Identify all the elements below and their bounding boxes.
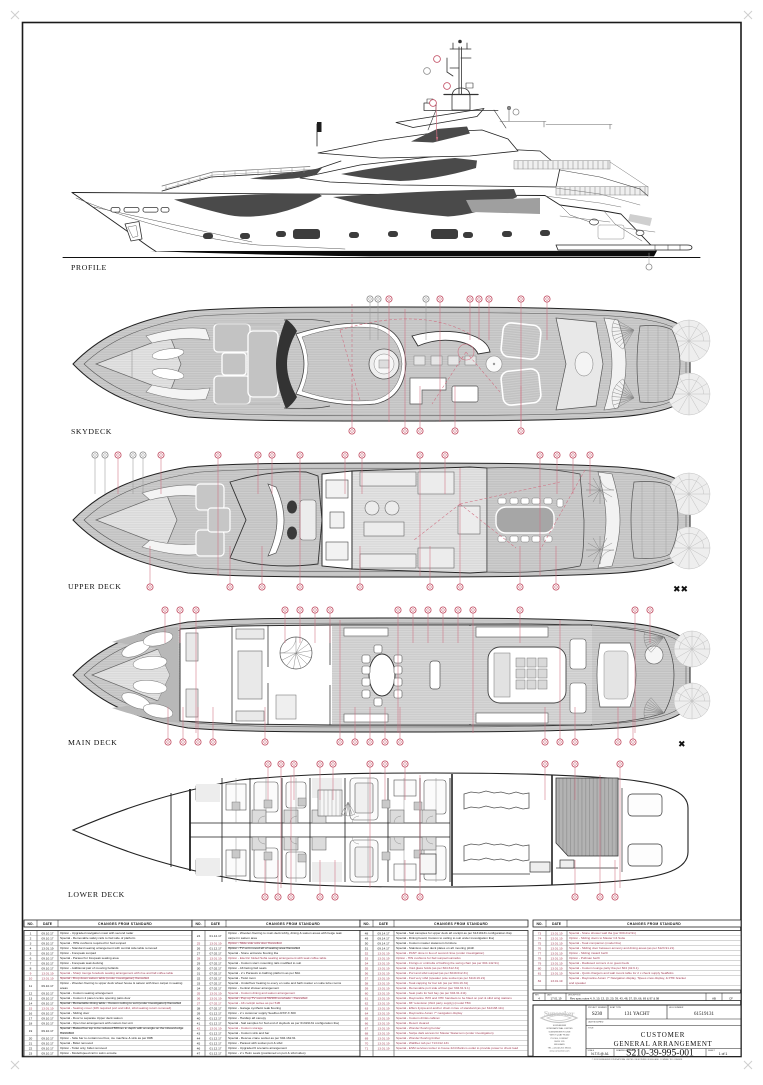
svg-text:07.02.17: 07.02.17 [209, 1006, 221, 1010]
svg-text:Cancelled: Cancelled [60, 1031, 74, 1035]
svg-text:53: 53 [365, 956, 369, 960]
svg-text:09.10.17: 09.10.17 [41, 931, 53, 935]
svg-text:10: 10 [29, 976, 33, 980]
svg-text:Special - Teak capping for bar: Special - Teak capping for bar tub (as p… [396, 981, 468, 985]
svg-text:Option - Wooden flooring to m: Option - Wooden flooring to main deck lo… [228, 931, 342, 935]
svg-text:17.01.19: 17.01.19 [551, 996, 562, 1000]
svg-text:areas: areas [60, 986, 68, 990]
svg-text:Special - Stone shower wall tb: Special - Stone shower wall tba (per 600… [569, 931, 636, 935]
svg-text:63: 63 [365, 1006, 369, 1010]
svg-text:Special - Sliding door between: Special - Sliding door between annexry a… [569, 946, 674, 950]
svg-text:31: 31 [197, 971, 201, 975]
svg-text:Option - Central shower arran: Option - Central shower arrangement [228, 986, 279, 990]
svg-text:13.01.19: 13.01.19 [377, 1011, 389, 1015]
svg-text:7: 7 [30, 961, 32, 965]
svg-text:Option - Model/speed rail in: Option - Model/speed rail in swim ensuit… [60, 1051, 117, 1055]
svg-text:18: 18 [29, 1021, 33, 1025]
svg-text:13.01.19: 13.01.19 [377, 956, 389, 960]
svg-text:Option - Garage synthetic tea: Option - Garage synthetic teak flooring [228, 1006, 281, 1010]
svg-text:NO.: NO. [363, 922, 369, 926]
svg-text:09.10.17: 09.10.17 [41, 941, 53, 945]
svg-text:BOAT TYPE: BOAT TYPE [610, 1006, 622, 1009]
svg-text:09.10.17: 09.10.17 [41, 961, 53, 965]
svg-text:WEST QUAY ROAD: WEST QUAY ROAD [550, 1034, 570, 1037]
svg-text:13.01.19: 13.01.19 [377, 981, 389, 985]
svg-text:Special - Drop down saloon tab: Special - Drop down saloon table (under … [60, 976, 149, 980]
svg-text:11: 11 [29, 984, 32, 988]
svg-text:61519131: 61519131 [694, 1012, 715, 1017]
svg-text:Special - 86" television (thir: Special - 86" television (third party su… [396, 1001, 472, 1005]
svg-text:Special - Seat pods for fwd ba: Special - Seat pods for fwd bay (as per … [396, 991, 466, 995]
svg-text:SUNSEEKER HOUSE: SUNSEEKER HOUSE [549, 1031, 571, 1033]
svg-text:CUSTOMER: CUSTOMER [641, 1031, 685, 1039]
svg-text:77: 77 [538, 951, 542, 955]
svg-text:13.01.19: 13.01.19 [377, 971, 389, 975]
svg-text:15: 15 [29, 1006, 33, 1010]
svg-text:S230: S230 [592, 1012, 603, 1017]
svg-text:01.12.17: 01.12.17 [209, 1031, 221, 1035]
svg-text:DATE: DATE [43, 922, 53, 926]
svg-text:Special - Teak companion (mode: Special - Teak companion (model tba) [569, 941, 621, 945]
svg-text:44: 44 [197, 1036, 201, 1040]
svg-text:13.01.19: 13.01.19 [377, 966, 389, 970]
svg-text:8: 8 [30, 966, 32, 970]
svg-text:Option - Aft facing fwd seats: Option - Aft facing fwd seats [228, 966, 267, 970]
svg-text:CHANGES FROM STANDARD: CHANGES FROM STANDARD [627, 922, 681, 926]
svg-text:09.10.17: 09.10.17 [41, 956, 53, 960]
svg-text:09.10.17: 09.10.17 [41, 1001, 53, 1005]
svg-text:14: 14 [29, 1001, 33, 1005]
svg-text:13.01.19: 13.01.19 [550, 966, 562, 970]
svg-text:LAST MODIFIED: LAST MODIFIED [588, 1021, 604, 1024]
svg-text:SUNSEEKER: SUNSEEKER [553, 1025, 567, 1027]
svg-text:67: 67 [365, 1026, 369, 1030]
svg-text:01.12.17: 01.12.17 [209, 934, 221, 938]
svg-text:79: 79 [538, 961, 542, 965]
svg-text:13.01.19: 13.01.19 [550, 946, 562, 950]
svg-text:01.12.17: 01.12.17 [209, 1011, 221, 1015]
svg-text:CHANGES FROM STANDARD: CHANGES FROM STANDARD [266, 922, 320, 926]
svg-text:19: 19 [29, 1029, 33, 1033]
svg-text:and speaker: and speaker [569, 981, 586, 985]
svg-text:57: 57 [365, 976, 369, 980]
svg-text:13.01.19: 13.01.19 [377, 1041, 389, 1045]
svg-text:1 of 1: 1 of 1 [719, 1052, 728, 1056]
svg-text:LOWER DECK: LOWER DECK [68, 890, 125, 899]
svg-text:07.02.17: 07.02.17 [209, 981, 221, 985]
svg-text:27: 27 [197, 951, 201, 955]
svg-text:76: 76 [538, 946, 542, 950]
svg-text:29: 29 [197, 961, 201, 965]
svg-text:42: 42 [197, 1026, 201, 1030]
svg-text:09.10.17: 09.10.17 [41, 1036, 53, 1040]
svg-text:Option - Sliding inward berth: Option - Sliding inward berth [569, 951, 608, 955]
svg-text:09.10.17: 09.10.17 [41, 991, 53, 995]
svg-text:Special - Void glass holds (as: Special - Void glass holds (as per 604.6… [396, 966, 459, 970]
svg-text:CF: CF [729, 996, 733, 1000]
svg-text:34: 34 [197, 986, 201, 990]
svg-text:POOLE, DORSET: POOLE, DORSET [551, 1038, 570, 1040]
svg-text:Option - Electric folded Sofi: Option - Electric folded Sofia seating a… [228, 956, 327, 960]
svg-text:17: 17 [29, 1016, 33, 1020]
svg-text:13.01.19: 13.01.19 [550, 936, 562, 940]
svg-text:Special - Custom dining and sa: Special - Custom dining and saloon arran… [228, 991, 295, 995]
svg-text:25: 25 [197, 941, 201, 945]
svg-text:13.01.19: 13.01.19 [209, 996, 221, 1000]
svg-text:32: 32 [197, 976, 201, 980]
svg-text:Special - Quick chargers and w: Special - Quick chargers and wall mount … [569, 971, 674, 975]
svg-text:13.01.19: 13.01.19 [377, 1016, 389, 1020]
svg-text:07.02.17: 07.02.17 [209, 971, 221, 975]
svg-text:38: 38 [197, 1006, 201, 1010]
svg-text:13.01.19: 13.01.19 [209, 1026, 221, 1030]
svg-text:23: 23 [29, 1051, 33, 1055]
svg-text:Option - Pullman berth: Option - Pullman berth [569, 956, 600, 960]
svg-text:Special - Sharp lounge foredec: Special - Sharp lounge foredeck seating … [60, 971, 173, 975]
svg-text:131 YACHT: 131 YACHT [624, 1012, 649, 1017]
svg-text:PROFILE: PROFILE [71, 263, 107, 272]
svg-text:NO.: NO. [536, 922, 542, 926]
svg-text:DATE: DATE [211, 922, 221, 926]
svg-text:01.12.17: 01.12.17 [209, 1041, 221, 1045]
svg-text:Special - Pop up TV summit 50/: Special - Pop up TV summit 50/100 sunsha… [228, 996, 308, 1000]
svg-text:Option - Slide side sofa door: Option - Slide side sofa door Cancelled [228, 941, 282, 945]
svg-text:Option - 2 x Helm seats (posi: Option - 2 x Helm seats (positioned on p… [228, 1051, 306, 1055]
svg-text:Special - Stone entrance floor: Special - Stone entrance flooring tba [228, 951, 278, 955]
svg-text:Special - PANT done in lieu of: Special - PANT done in lieu of second ri… [396, 951, 484, 955]
svg-text:13.01.19: 13.01.19 [550, 961, 562, 965]
svg-text:Special - Removable safety rai: Special - Removable safety rails to fwd … [60, 936, 136, 940]
svg-text:Special - HPE cushions require: Special - HPE cushions required for fwd … [60, 941, 126, 945]
svg-text:73: 73 [538, 931, 542, 935]
svg-text:Special - Seating cover (10ft: Special - Seating cover (10ft required p… [60, 1006, 171, 1010]
svg-text:DATE: DATE [379, 922, 389, 926]
svg-text:13.01.19: 13.01.19 [377, 976, 389, 980]
svg-text:SKYDECK: SKYDECK [71, 427, 112, 436]
svg-text:48: 48 [365, 931, 369, 935]
svg-text:59: 59 [365, 986, 369, 990]
svg-text:52: 52 [365, 951, 369, 955]
svg-text:BH15 1JD: BH15 1JD [555, 1041, 565, 1043]
svg-text:13.01.19: 13.01.19 [377, 951, 389, 955]
svg-text:Option - Toilet only, bidet r: Option - Toilet only, bidet removed [60, 1046, 107, 1050]
svg-text:51: 51 [365, 946, 369, 950]
svg-text:Special - Parasol for forepeak: Special - Parasol for forepeak seating a… [60, 956, 119, 960]
svg-text:37: 37 [197, 1001, 201, 1005]
svg-text:62: 62 [365, 1001, 369, 1005]
svg-text:ENGLAND: ENGLAND [554, 1043, 565, 1046]
svg-text:Option - Upgraded navigation: Option - Upgraded navigation mast with s… [60, 931, 133, 935]
svg-text:2: 2 [30, 936, 32, 940]
svg-text:13.01.19: 13.01.19 [41, 1006, 53, 1010]
svg-text:CHANGES FROM STANDARD: CHANGES FROM STANDARD [434, 922, 488, 926]
svg-text:13.01.19: 13.01.19 [377, 1001, 389, 1005]
svg-text:70: 70 [365, 1041, 369, 1045]
svg-text:Special - Sail samples for fwd: Special - Sail samples for fwd end of sk… [228, 1021, 339, 1025]
svg-text:43: 43 [197, 1031, 201, 1035]
svg-text:07.02.17: 07.02.17 [209, 976, 221, 980]
svg-text:Option - Forepeak sunpad: Option - Forepeak sunpad [60, 951, 96, 955]
svg-text:71: 71 [365, 1046, 369, 1050]
svg-text:13.01.19: 13.01.19 [550, 979, 562, 983]
svg-text:55: 55 [365, 966, 369, 970]
svg-text:Option - Side bar to contain: Option - Side bar to contain tool box, i… [60, 1036, 153, 1040]
svg-text:13.01.19: 13.01.19 [209, 991, 221, 995]
svg-text:09.14.17: 09.14.17 [377, 936, 389, 940]
svg-text:07.02.17: 07.02.17 [209, 986, 221, 990]
svg-text:13: 13 [29, 996, 33, 1000]
svg-text:Special - Underfloor heating t: Special - Underfloor heating to every en… [228, 981, 342, 985]
svg-text:13.01.19: 13.01.19 [550, 941, 562, 945]
svg-text:01.12.17: 01.12.17 [209, 1021, 221, 1025]
svg-text:13.01.19: 13.01.19 [41, 976, 53, 980]
svg-text:Special - 2 x Parasols to bath: Special - 2 x Parasols to bathing platfo… [228, 971, 301, 975]
svg-text:www.sunseeker.com: www.sunseeker.com [550, 1050, 570, 1053]
svg-text:INTERNATIONAL LIMITED: INTERNATIONAL LIMITED [546, 1027, 573, 1030]
svg-text:39: 39 [197, 1011, 201, 1015]
svg-text:Special - Bidet removed: Special - Bidet removed [60, 1041, 93, 1045]
svg-text:64: 64 [365, 1011, 369, 1015]
svg-text:13.01.19: 13.01.19 [550, 931, 562, 935]
svg-text:13.01.19: 13.01.19 [41, 971, 53, 975]
svg-text:21: 21 [29, 1041, 33, 1045]
svg-text:Option - Upgraded 6 scenario: Option - Upgraded 6 scenario arrangement [228, 1046, 287, 1050]
svg-text:40: 40 [197, 1016, 201, 1020]
svg-text:09.10.17: 09.10.17 [41, 1011, 53, 1015]
svg-text:9: 9 [30, 971, 32, 975]
svg-text:24: 24 [197, 934, 201, 938]
svg-text:13.01.19: 13.01.19 [550, 951, 562, 955]
svg-text:13.01.19: 13.01.19 [550, 971, 562, 975]
svg-text:01.12.17: 01.12.17 [209, 1046, 221, 1050]
svg-text:13.01.19: 13.01.19 [209, 941, 221, 945]
svg-text:13.01.19: 13.01.19 [377, 1021, 389, 1025]
svg-text:36: 36 [197, 996, 201, 1000]
svg-text:Option - 2 x customer supply: Option - 2 x customer supply SeaDoo RXP-… [228, 1011, 296, 1015]
svg-text:09.10.17: 09.10.17 [41, 951, 53, 955]
svg-text:13.01.19: 13.01.19 [377, 1026, 389, 1030]
svg-text:66: 66 [365, 1021, 369, 1025]
svg-text:33: 33 [197, 981, 201, 985]
svg-text:09.10.17: 09.10.17 [41, 1021, 53, 1025]
svg-text:61: 61 [365, 996, 369, 1000]
svg-text:Special - Fwd very stbd (speak: Special - Fwd very stbd (speaker pole so… [396, 976, 485, 980]
svg-text:Special - Custom drinks cabine: Special - Custom drinks cabinet [396, 1016, 440, 1020]
svg-text:MAIN DECK: MAIN DECK [68, 738, 117, 747]
svg-text:12: 12 [29, 991, 33, 995]
svg-text:13.01.19: 13.01.19 [377, 1046, 389, 1050]
svg-text:DATE: DATE [552, 922, 562, 926]
svg-text:Special - Rescue crane socket: Special - Rescue crane socket as per 604… [228, 1036, 296, 1040]
svg-text:Special - Raymarine Axiom 7" N: Special - Raymarine Axiom 7" Navigation … [569, 976, 686, 980]
svg-text:50: 50 [365, 941, 369, 945]
svg-text:13.01.19: 13.01.19 [377, 1031, 389, 1035]
svg-text:1: 1 [30, 931, 32, 935]
svg-text:PROJECT NUMBER: PROJECT NUMBER [588, 1007, 607, 1009]
svg-text:Special - Dining board, Custom: Special - Dining board, Custom to ceilin… [396, 936, 494, 940]
svg-text:Special - Custom sink and bar: Special - Custom sink and bar [228, 1031, 269, 1035]
svg-text:07.02.17: 07.02.17 [209, 951, 221, 955]
svg-text:45: 45 [197, 1041, 201, 1045]
svg-text:Special - Wonder flooring timb: Special - Wonder flooring timber [396, 1036, 440, 1040]
svg-text:Option - TV unit moved aft of: Option - TV unit moved aft of seating ar… [228, 946, 300, 950]
svg-text:Special - Custom storage: Special - Custom storage [228, 1026, 263, 1030]
svg-text:09.10.17: 09.10.17 [41, 1051, 53, 1055]
svg-text:Special - Door to separate Upp: Special - Door to separate Upper deck sa… [60, 1016, 123, 1020]
svg-text:01.12.17: 01.12.17 [209, 1016, 221, 1020]
svg-text:09.10.17: 09.10.17 [41, 1046, 53, 1050]
svg-text:Special - Raymarine IS70 and V: Special - Raymarine IS70 and VHF handset… [396, 996, 512, 1000]
svg-text:Special - WallDec tab per 713.: Special - WallDec tab per 713.012.131 [396, 1041, 449, 1045]
svg-text:Option - HIN cushions for fwd: Option - HIN cushions for fwd sunpad sun… [396, 956, 461, 960]
svg-text:81: 81 [538, 971, 542, 975]
svg-text:13.01.19: 13.01.19 [377, 986, 389, 990]
svg-text:Special - Custom master stater: Special - Custom master stateroom furnit… [396, 941, 457, 945]
svg-text:09.14.17: 09.14.17 [377, 931, 389, 935]
svg-text:54: 54 [365, 961, 369, 965]
svg-text:Special - Custom lounge party: Special - Custom lounge party tba per 60… [569, 966, 638, 970]
svg-text:80: 80 [538, 966, 542, 970]
svg-text:✖: ✖ [678, 739, 686, 749]
svg-text:Option - Standard seating arr: Option - Standard seating arrangement wi… [60, 946, 157, 950]
svg-text:4: 4 [30, 946, 32, 950]
svg-text:68: 68 [365, 1031, 369, 1035]
svg-text:47: 47 [197, 1051, 201, 1055]
svg-text:Special - Stainless steel deck: Special - Stainless steel deck plates on… [396, 946, 475, 950]
svg-text:35: 35 [197, 991, 201, 995]
svg-text:28: 28 [197, 956, 201, 960]
svg-text:22: 22 [29, 1046, 33, 1050]
svg-text:Special - ESM services locker: Special - ESM services locker to house 2… [396, 1046, 518, 1050]
svg-text:CHANGES FROM STANDARD: CHANGES FROM STANDARD [98, 922, 152, 926]
svg-text:13.01.19: 13.01.19 [377, 991, 389, 995]
svg-text:16: 16 [29, 1011, 33, 1015]
svg-text:Option - Hardtop aft canopy: Option - Hardtop aft canopy [228, 1016, 266, 1020]
svg-text:78: 78 [538, 956, 542, 960]
svg-text:07.02.17: 07.02.17 [209, 966, 221, 970]
svg-text:Special - Custom 4 panel centr: Special - Custom 4 panel centre opening … [60, 996, 131, 1000]
svg-text:01.12.17: 01.12.17 [209, 946, 221, 950]
svg-text:Special - Effers ilycpa and an: Special - Effers ilycpa and anchor chain… [396, 1006, 504, 1010]
svg-text:Special - Aft cockpit settee a: Special - Aft cockpit settee as per 51B [228, 1001, 280, 1005]
svg-text:Option - Sliding doors to Mas: Option - Sliding doors to Master C4 Suit… [569, 936, 626, 940]
svg-text:20: 20 [29, 1036, 33, 1040]
svg-text:26: 26 [197, 946, 201, 950]
svg-text:74: 74 [538, 936, 542, 940]
svg-text:01.12.17: 01.12.17 [209, 1051, 221, 1055]
svg-text:TEL +44 (0)1202 381111: TEL +44 (0)1202 381111 [548, 1047, 573, 1049]
svg-text:N.T.S @ A1: N.T.S @ A1 [591, 1052, 609, 1056]
svg-text:07.02.17: 07.02.17 [209, 1001, 221, 1005]
svg-text:Special - Retractable dining t: Special - Retractable dining table - Cus… [60, 1001, 181, 1005]
svg-text:Special - Fixings or umbrella: Special - Fixings or umbrella of bathing… [396, 961, 499, 965]
svg-text:09.10.17: 09.10.17 [41, 936, 53, 940]
svg-text:58: 58 [365, 981, 369, 985]
svg-text:✖✖: ✖✖ [673, 584, 688, 594]
svg-text:09.14.17: 09.14.17 [377, 946, 389, 950]
svg-text:Special - Custom stern mountin: Special - Custom stern mounting rails mo… [228, 961, 301, 965]
svg-text:01.12.17: 01.12.17 [209, 1036, 221, 1040]
svg-text:Special - Raymarine Axiom 7" n: Special - Raymarine Axiom 7" navigation … [396, 1011, 463, 1015]
svg-text:13.01.19: 13.01.19 [377, 961, 389, 965]
svg-text:Special - Sail canopies for up: Special - Sail canopies for upper deck a… [396, 931, 512, 935]
svg-text:TITLE: TITLE [588, 1028, 594, 1030]
svg-text:09.10.17: 09.10.17 [41, 966, 53, 970]
svg-text:41: 41 [197, 1021, 201, 1025]
svg-text:Option - Additional pair of m: Option - Additional pair of mooring boll… [60, 966, 119, 970]
svg-text:69: 69 [365, 1036, 369, 1040]
svg-text:09.10.17: 09.10.17 [41, 984, 53, 988]
svg-text:Special - Swipe dark access fo: Special - Swipe dark access for Master S… [396, 1031, 494, 1035]
svg-text:30: 30 [197, 966, 201, 970]
svg-text:Special - Radiused corners d o: Special - Radiused corners d on guest be… [569, 961, 629, 965]
svg-text:S210-39-995-001: S210-39-995-001 [626, 1047, 694, 1058]
svg-text:NO.: NO. [195, 922, 201, 926]
svg-text:Special - Raised bar top to be: Special - Raised bar top to be reduced 5… [60, 1026, 184, 1030]
svg-text:© 2019 SUNSEEKER INTERNATIONAL: © 2019 SUNSEEKER INTERNATIONAL LIMITED. … [592, 1058, 682, 1061]
svg-text:Rev spec notes 4, 9, 10, 13, 1: Rev spec notes 4, 9, 10, 13, 15, 20, 39,… [570, 996, 660, 1000]
svg-text:56: 56 [365, 971, 369, 975]
svg-text:09.10.17: 09.10.17 [41, 1016, 53, 1020]
svg-text:SHEET: SHEET [708, 1050, 715, 1052]
svg-text:13.01.19: 13.01.19 [377, 1036, 389, 1040]
svg-text:UPPER DECK: UPPER DECK [68, 582, 121, 591]
svg-text:13.01.19: 13.01.19 [377, 1006, 389, 1010]
svg-text:75: 75 [538, 941, 542, 945]
svg-text:carpet in saloon area: carpet in saloon area [228, 936, 257, 940]
svg-text:Special - Wonder flooring bord: Special - Wonder flooring border [396, 1026, 440, 1030]
svg-text:Special - Removable port side: Special - Removable port side aft bar (p… [396, 986, 470, 990]
svg-text:09.14.17: 09.14.17 [377, 941, 389, 945]
svg-text:13.01.19: 13.01.19 [550, 956, 562, 960]
svg-text:82: 82 [538, 979, 542, 983]
svg-text:13.01.19: 13.01.19 [41, 946, 53, 950]
svg-text:Special - Resort cleared: Special - Resort cleared [396, 1021, 429, 1025]
svg-text:09.10.17: 09.10.17 [41, 996, 53, 1000]
svg-text:Option - Forepeak teak deckin: Option - Forepeak teak decking [60, 961, 103, 965]
svg-text:Special - Custom seating arran: Special - Custom seating arrangement [60, 991, 113, 995]
svg-text:Special - Sliding door: Special - Sliding door [60, 1011, 89, 1015]
svg-text:65: 65 [365, 1016, 369, 1020]
svg-text:6: 6 [30, 956, 32, 960]
svg-text:Special - Open bar arrangement: Special - Open bar arrangement with cust… [60, 1021, 133, 1025]
svg-text:Special - Twist room: Special - Twist room [228, 976, 256, 980]
svg-text:46: 46 [197, 1046, 201, 1050]
svg-text:HULL NUMBER: HULL NUMBER [669, 1007, 684, 1009]
svg-text:07.02.17: 07.02.17 [209, 961, 221, 965]
svg-text:5: 5 [30, 951, 32, 955]
svg-text:13.01.19: 13.01.19 [209, 956, 221, 960]
svg-text:49: 49 [365, 936, 369, 940]
svg-text:AB: AB [712, 996, 716, 1000]
svg-text:Option - Parasol with socket: Option - Parasol with socket port & stbd [228, 1041, 283, 1045]
svg-text:NO.: NO. [27, 922, 33, 926]
svg-text:3: 3 [30, 941, 32, 945]
svg-text:Option - Wooden flooring to u: Option - Wooden flooring to upper deck w… [60, 981, 183, 985]
svg-text:09.10.17: 09.10.17 [41, 1041, 53, 1045]
svg-text:60: 60 [365, 991, 369, 995]
svg-text:Special - Port and stbd sunpad: Special - Port and stbd sunpad (as per 6… [396, 971, 468, 975]
svg-text:13.01.19: 13.01.19 [377, 996, 389, 1000]
svg-text:09.10.17: 09.10.17 [41, 1029, 53, 1033]
